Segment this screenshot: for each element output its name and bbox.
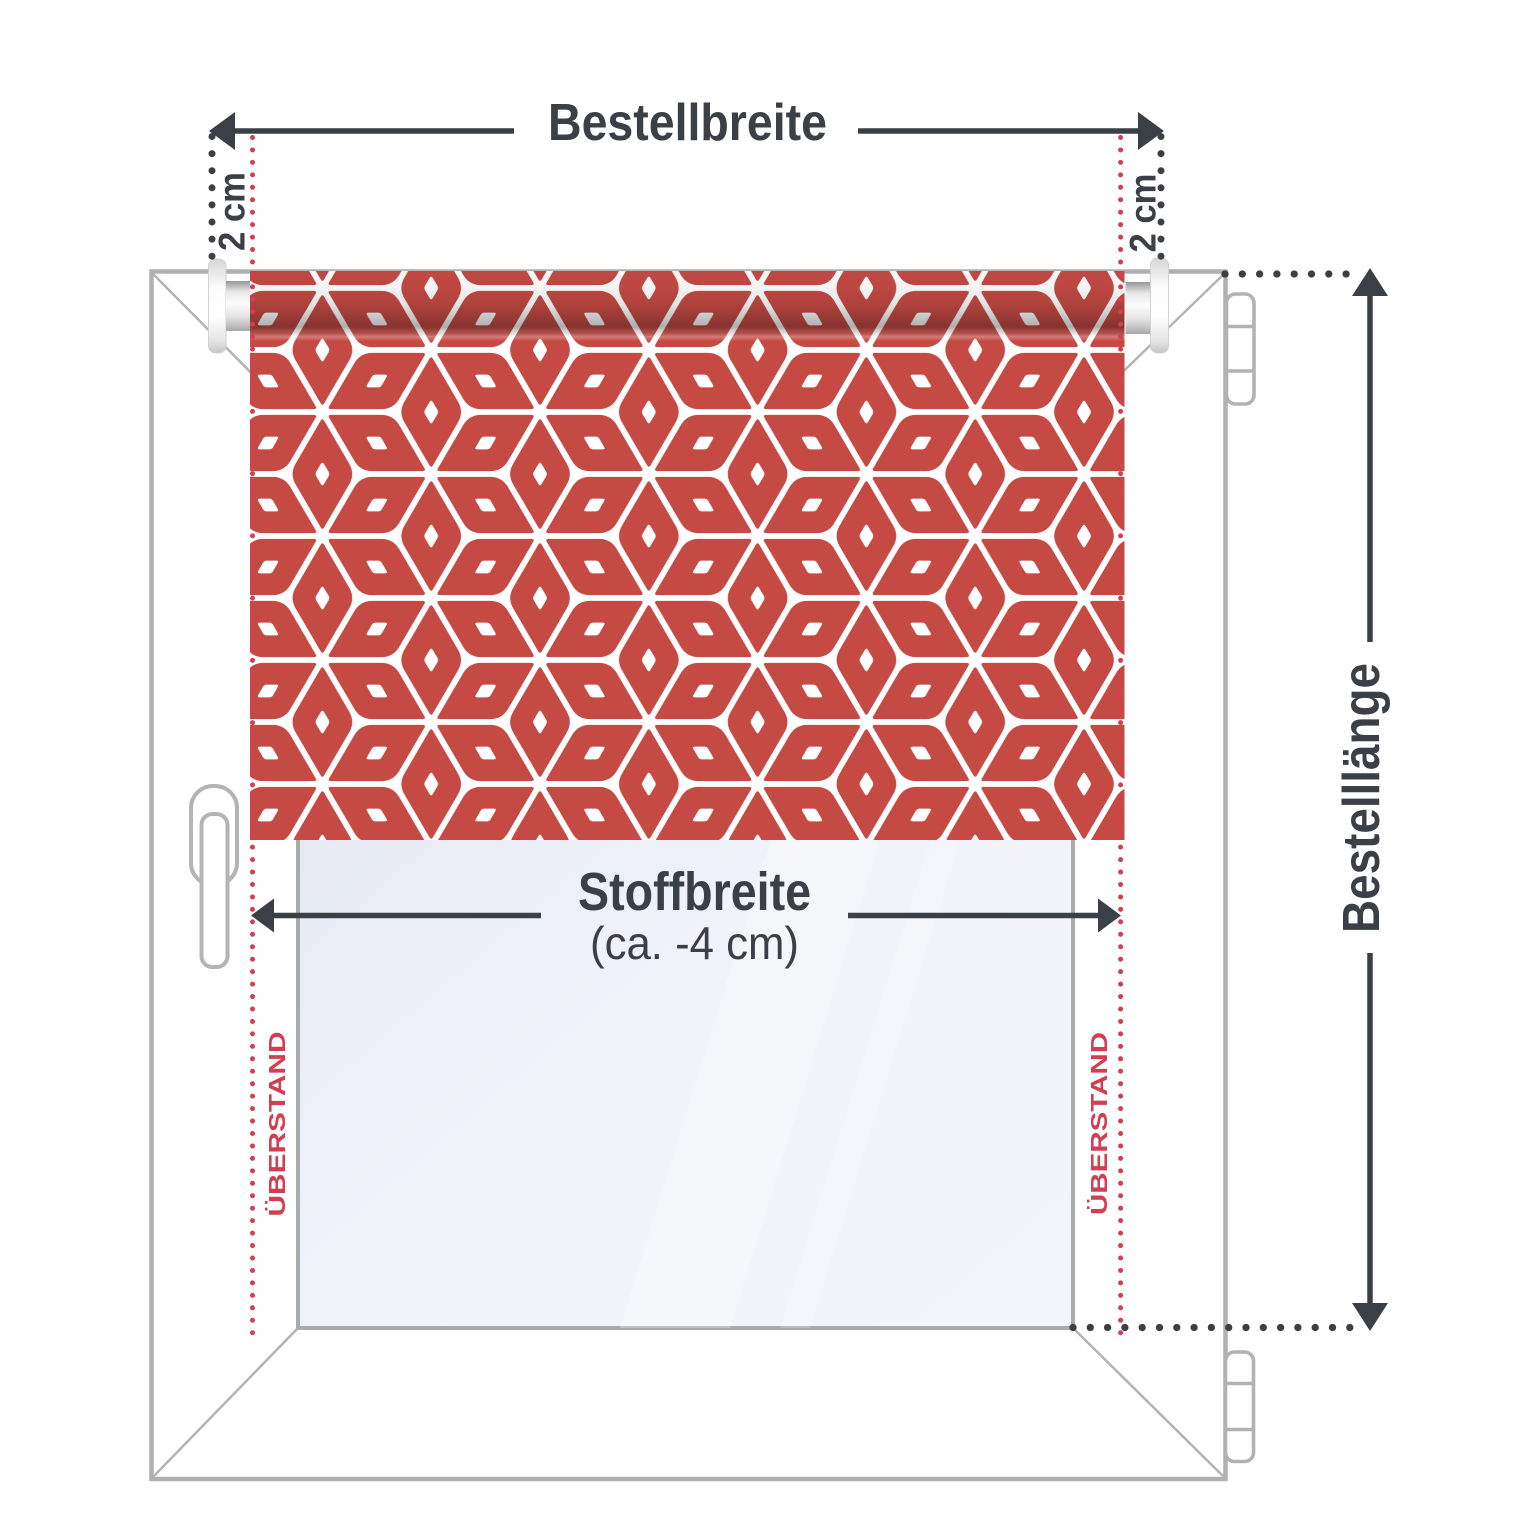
svg-text:ÜBERSTAND: ÜBERSTAND	[264, 1032, 290, 1217]
svg-text:Bestellbreite: Bestellbreite	[548, 94, 827, 152]
svg-text:2 cm: 2 cm	[212, 172, 253, 251]
svg-text:2 cm: 2 cm	[1123, 174, 1164, 253]
svg-text:Stoffbreite: Stoffbreite	[578, 862, 811, 922]
svg-text:(ca. -4 cm): (ca. -4 cm)	[590, 917, 799, 969]
svg-text:Bestelllänge: Bestelllänge	[1333, 663, 1391, 933]
svg-text:ÜBERSTAND: ÜBERSTAND	[1086, 1032, 1112, 1215]
